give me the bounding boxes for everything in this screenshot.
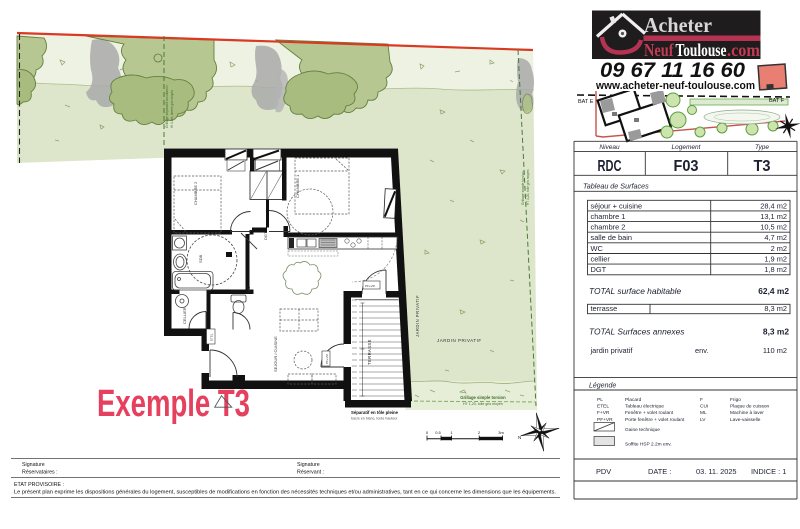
svg-text:terrasse: terrasse [591,304,618,313]
svg-text:Signature: Signature [22,462,45,468]
svg-text:Séparatif en tôle pleine: Séparatif en tôle pleine [351,410,399,415]
svg-text:N: N [518,435,521,440]
svg-text:PF+VR: PF+VR [597,417,613,423]
svg-text:Grillage séparatif occultation: Grillage séparatif occultation [165,85,169,128]
svg-text:03. 11. 2025: 03. 11. 2025 [696,467,737,476]
svg-text:CHAMBRE 2: CHAMBRE 2 [193,181,198,205]
svg-text:1,8 m2: 1,8 m2 [764,265,787,274]
svg-text:1,9 m2: 1,9 m2 [764,255,787,264]
svg-text:Gaine technique: Gaine technique [625,427,660,433]
svg-text:WC: WC [591,244,604,253]
svg-text:WC: WC [246,286,251,293]
svg-text:bac/e en blanc, toute hauteur: bac/e en blanc, toute hauteur [351,417,398,421]
svg-text:0.5: 0.5 [435,430,441,435]
svg-text:ETEL: ETEL [210,333,214,341]
svg-text:Fenêtre + volet roulant: Fenêtre + volet roulant [625,410,674,416]
svg-text:Porte fenêtre + volet roulant: Porte fenêtre + volet roulant [625,417,685,423]
svg-text:ETAT PROVISOIRE :: ETAT PROVISOIRE : [14,482,64,488]
svg-text:T3: T3 [754,158,771,175]
svg-text:env.: env. [695,346,708,355]
svg-text:JARDIN PRIVATIF: JARDIN PRIVATIF [415,295,420,337]
svg-text:Plaque de cuisson: Plaque de cuisson [730,404,770,410]
svg-text:28,4 m2: 28,4 m2 [760,201,787,210]
svg-text:Grillage simple torsion: Grillage simple torsion [460,395,506,400]
svg-text:Niveau: Niveau [599,144,620,151]
svg-text:F03: F03 [674,158,699,175]
svg-text:chambre 2: chambre 2 [591,223,626,232]
svg-text:BAT F: BAT F [769,98,785,104]
svg-text:Toulouse: Toulouse [676,40,727,60]
svg-text:Frigo: Frigo [730,397,741,403]
svg-text:PDV: PDV [596,467,611,476]
svg-text:Ht 1.5m, lames gris moyen: Ht 1.5m, lames gris moyen [170,90,174,128]
svg-text:TERRASSE: TERRASSE [367,339,372,365]
svg-text:CUI: CUI [700,404,708,410]
svg-text:SEJOUR / CUISINE: SEJOUR / CUISINE [273,336,278,372]
svg-text:13,1 m2: 13,1 m2 [760,212,787,221]
svg-text:Placard: Placard [625,397,642,403]
svg-text:8,3 m2: 8,3 m2 [764,304,787,313]
svg-text:Machine à laver: Machine à laver [730,410,764,416]
svg-text:10,5 m2: 10,5 m2 [760,223,787,232]
svg-text:chambre 1: chambre 1 [591,212,626,221]
svg-text:DGT: DGT [263,231,268,240]
svg-text:HT 1,20, toile gris moyen: HT 1,20, toile gris moyen [463,402,503,406]
svg-text:Exemple T3: Exemple T3 [97,383,250,425]
svg-text:Réservant :: Réservant : [297,470,324,476]
svg-text:www.acheter-neuf-toulouse.com: www.acheter-neuf-toulouse.com [595,80,755,92]
svg-text:Tableau électrique: Tableau électrique [625,404,664,410]
svg-text:ML: ML [700,410,707,416]
svg-text:Soffite HSP 2.2m env.: Soffite HSP 2.2m env. [625,442,672,448]
svg-text:4,7 m2: 4,7 m2 [764,233,787,242]
svg-text:Le présent plan exprime les di: Le présent plan exprime les dispositions… [14,490,556,496]
svg-text:3m: 3m [498,430,504,435]
svg-text:Acheter: Acheter [644,13,712,37]
svg-text:PF+VR: PF+VR [325,353,329,364]
svg-text:DATE :: DATE : [648,467,671,476]
svg-text:F+VR: F+VR [597,410,610,416]
svg-text:PL: PL [597,397,603,403]
svg-text:F: F [700,397,703,403]
svg-text:Logement: Logement [672,144,702,151]
svg-text:HT 1,20, toile gris moyen: HT 1,20, toile gris moyen [526,169,530,205]
svg-text:cellier: cellier [591,255,611,264]
svg-text:PF+VR: PF+VR [365,284,376,288]
svg-text:Signature: Signature [297,462,320,468]
svg-text:Lave-vaisselle: Lave-vaisselle [730,417,761,423]
svg-text:séjour + cuisine: séjour + cuisine [591,201,643,210]
svg-text:8,3 m2: 8,3 m2 [763,326,789,336]
svg-text:TOTAL Surfaces annexes: TOTAL Surfaces annexes [589,326,685,336]
svg-text:CHAMBRE 1: CHAMBRE 1 [295,174,300,198]
svg-text:Type: Type [755,144,769,151]
svg-text:2 m2: 2 m2 [771,244,787,253]
svg-text:Tableau de Surfaces: Tableau de Surfaces [583,181,649,190]
svg-text:Légende: Légende [589,382,616,389]
svg-text:Neuf: Neuf [644,40,674,60]
svg-text:SDB: SDB [198,254,203,263]
svg-text:Réservataires :: Réservataires : [22,470,58,476]
svg-text:09 67 11 16 60: 09 67 11 16 60 [600,59,745,82]
svg-text:62,4 m2: 62,4 m2 [758,286,789,296]
svg-text:BAT E: BAT E [578,99,594,105]
svg-text:TOTAL surface habitable: TOTAL surface habitable [589,286,682,296]
svg-text:jardin privatif: jardin privatif [590,346,634,355]
svg-text:CELLIER: CELLIER [182,307,187,324]
svg-text:RDC: RDC [598,158,622,175]
svg-text:INDICE : 1: INDICE : 1 [751,467,786,476]
svg-text:DGT: DGT [591,265,607,274]
svg-text:LV: LV [700,417,706,423]
svg-text:salle de bain: salle de bain [591,233,633,242]
svg-text:Grillage simple torsion: Grillage simple torsion [521,171,525,205]
svg-text:JARDIN PRIVATIF: JARDIN PRIVATIF [437,338,482,343]
svg-text:.com: .com [727,40,760,60]
svg-text:ETEL: ETEL [597,404,609,410]
svg-text:110 m2: 110 m2 [763,346,787,355]
